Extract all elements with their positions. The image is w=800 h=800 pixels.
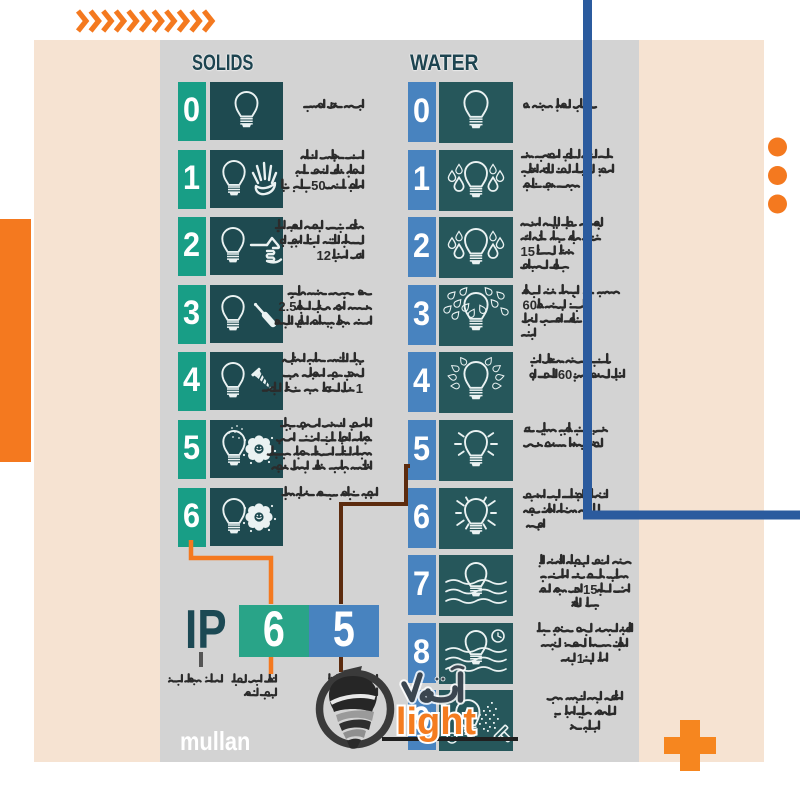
svg-text:light: light <box>396 701 477 743</box>
